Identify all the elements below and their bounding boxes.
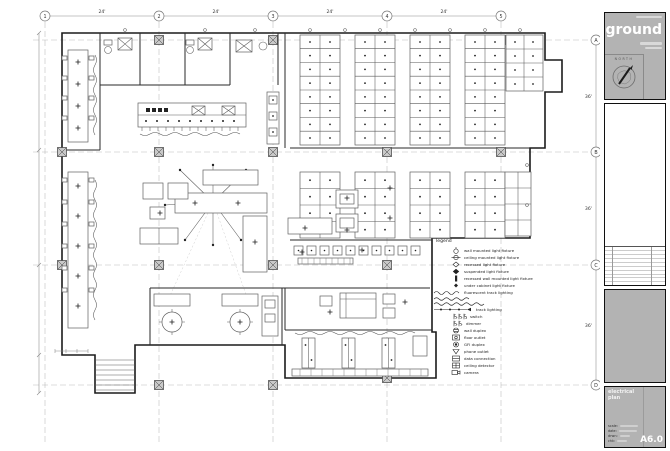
legend-item: floor outlet: [433, 334, 537, 341]
legend: legend wall mounted light fixture ceilin…: [433, 239, 537, 376]
dim-label: 36': [585, 206, 592, 212]
legend-item: track lighting: [433, 306, 537, 313]
legend-item: ceiling mounted light fixture: [433, 254, 537, 261]
legend-item: switch: [433, 313, 537, 320]
grid-bubble-4: 4: [385, 14, 388, 20]
left-conference-tables: [62, 50, 97, 328]
legend-item: wall mounted light fixture: [433, 247, 537, 254]
legend-item: recessed light fixture: [433, 261, 537, 268]
right-dimension-line: A B C D 36' 36' 36': [585, 35, 600, 390]
kitchen-counter: [138, 103, 246, 136]
recessed-fixture-icon: [451, 261, 461, 268]
grid-bubble-2: 2: [157, 14, 160, 20]
lounge-room: [320, 293, 408, 318]
dim-label: 24': [98, 9, 105, 15]
shelf-strip: [267, 92, 279, 144]
sheet-info: scale: date: drwn: chk:: [608, 424, 638, 444]
ceiling-detector-icon: [451, 362, 461, 369]
suspended-fixture-icon: [451, 268, 461, 275]
compass-icon: [610, 61, 638, 91]
titleblock-revisions: [604, 103, 666, 286]
booth-seating: [294, 246, 420, 264]
ceiling-mounted-fixture-icon: [451, 254, 461, 261]
legend-title: legend: [433, 239, 537, 244]
revision-table: [605, 246, 665, 285]
dim-label: 24': [326, 9, 333, 15]
legend-item: wall duplex: [433, 327, 537, 334]
dim-label: 36': [585, 94, 592, 100]
legend-item: data connection: [433, 355, 537, 362]
sheet-title: electrical plan: [605, 387, 642, 402]
wall-mounted-fixture-icon: [451, 247, 461, 254]
floor-outlet-icon: [451, 334, 461, 341]
check-label: chk:: [608, 439, 615, 444]
legend-item: GFI duplex: [433, 341, 537, 348]
recessed-wall-fixture-icon: [451, 275, 461, 282]
switch-icon: [451, 313, 467, 320]
grid-bubble-d: D: [594, 383, 598, 389]
legend-item: ceiling detector: [433, 362, 537, 369]
floor-label: ground: [605, 18, 665, 37]
legend-item: phone outlet: [433, 348, 537, 355]
legend-item: dimmer: [433, 320, 537, 327]
titleblock-header: ground NORTH: [604, 12, 666, 100]
left-dimension-line: [37, 31, 41, 395]
legend-item: under cabinet light fixture: [433, 282, 537, 289]
dim-label: 36': [585, 323, 592, 329]
north-arrow: NORTH: [605, 54, 644, 99]
grid-bubble-3: 3: [271, 14, 274, 20]
under-cabinet-fixture-icon: [451, 282, 461, 289]
legend-item: camera: [433, 369, 537, 376]
titleblock-info: electrical plan scale: date: drwn: chk: …: [604, 386, 666, 448]
legend-item: recessed wall mounted light fixture: [433, 275, 537, 282]
phone-outlet-icon: [451, 348, 461, 355]
data-connection-icon: [451, 355, 461, 362]
dim-label: 24': [212, 9, 219, 15]
address-text: [645, 47, 662, 49]
dimmer-icon: [451, 320, 463, 327]
floor-plan: 1 2 3 4 5 24' 24' 24' 24' A B C D 36' 36…: [0, 0, 600, 451]
gfi-duplex-icon: [451, 341, 461, 348]
top-dimension-line: 1 2 3 4 5 24' 24' 24' 24': [40, 9, 506, 21]
bottom-seating: [292, 332, 428, 377]
drawing-sheet: 1 2 3 4 5 24' 24' 24' 24' A B C D 36' 36…: [0, 0, 670, 451]
dining-room: [154, 294, 278, 336]
sheet-number: A6.0: [640, 435, 663, 445]
track-lighting-icon: [433, 306, 473, 313]
dim-label: 24': [440, 9, 447, 15]
grid-bubble-1: 1: [43, 14, 46, 20]
address-text: [640, 42, 662, 44]
open-office-area: [140, 164, 393, 300]
titleblock-seal: [604, 289, 666, 383]
grid-bubble-5: 5: [499, 14, 502, 20]
wall-duplex-icon: [451, 327, 461, 334]
grid-bubble-b: B: [594, 150, 597, 156]
legend-item: suspended light fixture: [433, 268, 537, 275]
camera-icon: [451, 369, 461, 376]
